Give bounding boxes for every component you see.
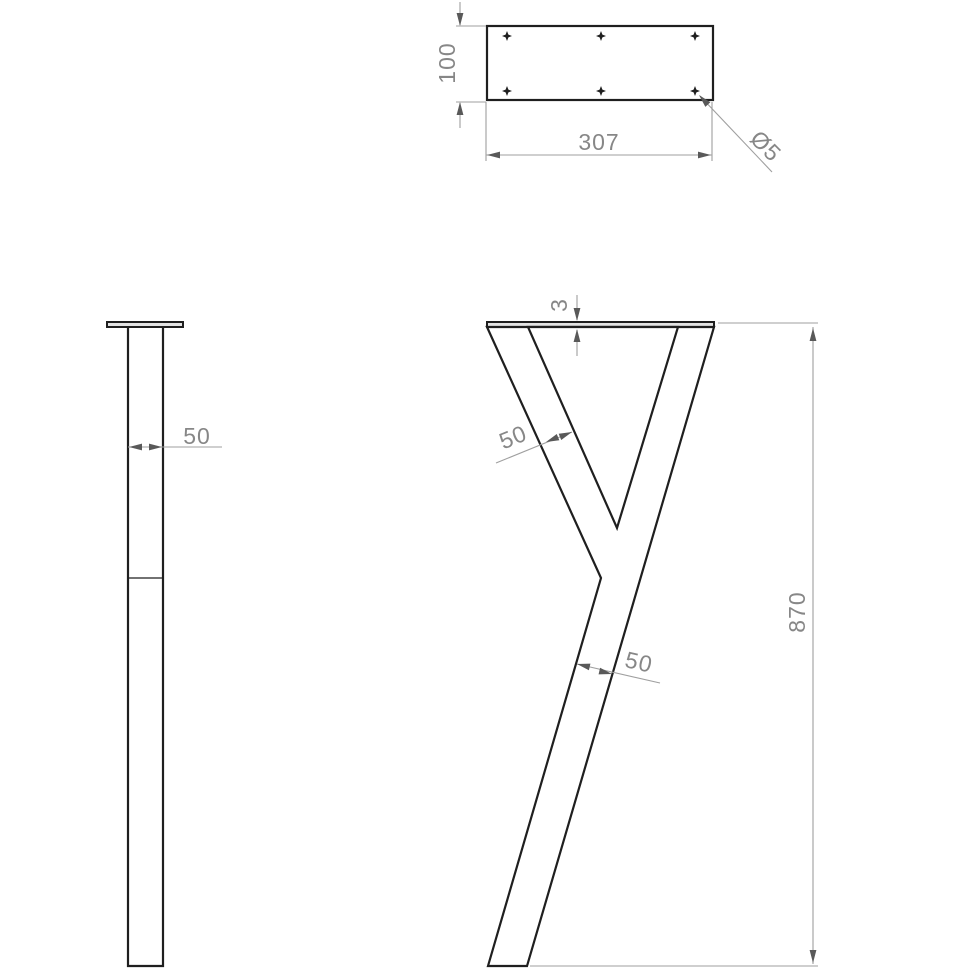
drawing-canvas: 100 307 Ø5 50 [0, 0, 970, 971]
mounting-hole-icon [502, 86, 512, 96]
dim-label-plate-height: 100 [434, 42, 460, 83]
dim-label-plate-width: 307 [578, 129, 619, 155]
arrow-icon [457, 102, 464, 115]
top-view: 100 307 Ø5 [434, 2, 787, 172]
arrow-icon [457, 13, 464, 26]
dim-leg-width: 50 [128, 423, 222, 450]
technical-drawing: 100 307 Ø5 50 [0, 0, 970, 971]
mounting-hole-icon [690, 86, 700, 96]
mounting-hole-icon [596, 86, 606, 96]
side-view: 50 [107, 322, 222, 966]
dim-label-hole-diameter: Ø5 [745, 125, 786, 166]
mounting-hole-icon [596, 31, 606, 41]
arrow-icon [149, 444, 162, 451]
dim-label-stem-width: 50 [623, 646, 656, 678]
mounting-hole-icon [690, 31, 700, 41]
dim-label-plate-thickness: 3 [546, 298, 572, 312]
dim-plate-width: 307 [486, 102, 712, 161]
front-view: 3 50 50 870 [487, 295, 818, 966]
leg-profile-outline [128, 327, 163, 966]
arrow-icon [574, 308, 581, 321]
arrow-icon [810, 328, 817, 341]
arrow-icon [487, 152, 500, 159]
arrow-icon [698, 152, 711, 159]
mounting-hole-icon [502, 31, 512, 41]
dim-label-arm-width: 50 [495, 420, 530, 454]
arrow-icon [129, 444, 142, 451]
hole-callout: Ø5 [697, 93, 787, 172]
dim-plate-height: 100 [434, 2, 486, 128]
dim-label-profile-width: 50 [183, 423, 211, 449]
dim-label-overall-height: 870 [784, 591, 810, 632]
arrow-icon [810, 950, 817, 963]
top-plate-edge [107, 322, 183, 327]
